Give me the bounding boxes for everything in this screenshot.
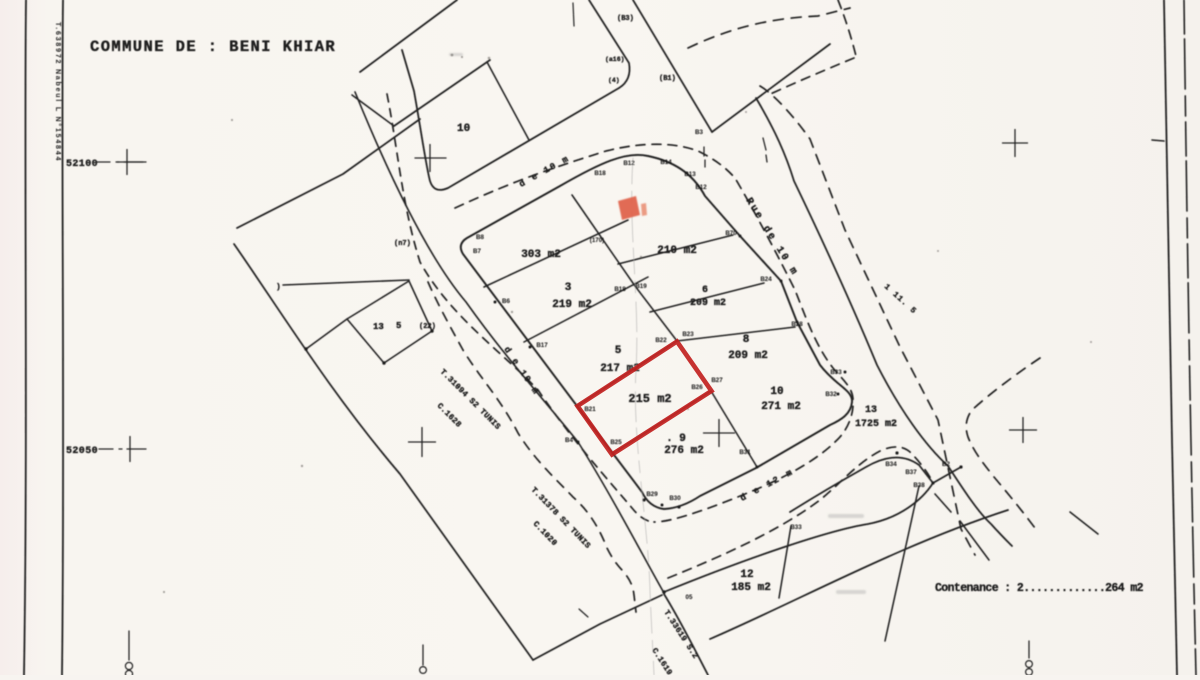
svg-text:(B3): (B3): [617, 15, 634, 23]
svg-text:B6: B6: [502, 298, 510, 305]
svg-text:B32: B32: [825, 391, 837, 398]
svg-text:B7: B7: [473, 248, 481, 255]
svg-text:13: 13: [865, 405, 877, 416]
svg-text:(n7): (n7): [394, 240, 411, 248]
svg-text:(a16): (a16): [605, 56, 625, 63]
svg-text:B34: B34: [885, 461, 897, 468]
svg-text:13: 13: [373, 322, 384, 332]
svg-text:B37: B37: [905, 469, 917, 476]
svg-text:Contenance : 2.............26: Contenance : 2.............264 m2: [935, 582, 1144, 595]
svg-text:10: 10: [770, 386, 783, 398]
svg-text:12: 12: [740, 569, 753, 581]
svg-text:05: 05: [686, 594, 693, 601]
svg-text:1725 m2: 1725 m2: [855, 419, 897, 430]
svg-text:276 m2: 276 m2: [664, 445, 704, 457]
svg-text:(22): (22): [419, 323, 436, 331]
svg-text:10: 10: [457, 123, 470, 135]
svg-text:271 m2: 271 m2: [761, 401, 801, 413]
svg-text:B4: B4: [565, 437, 573, 444]
svg-text:210 m2: 210 m2: [657, 245, 697, 257]
svg-text:B2: B2: [942, 461, 950, 468]
svg-text:B3: B3: [695, 129, 703, 136]
svg-text:B8: B8: [476, 234, 484, 241]
svg-text:52050: 52050: [66, 446, 98, 457]
svg-text:303 m2: 303 m2: [521, 249, 561, 261]
svg-text:B23: B23: [682, 331, 694, 338]
svg-text:B30: B30: [669, 495, 681, 502]
svg-text:B29: B29: [646, 491, 658, 498]
svg-text:209 m2: 209 m2: [690, 298, 726, 309]
svg-text:185 m2: 185 m2: [731, 582, 771, 594]
svg-text:B13: B13: [684, 171, 696, 178]
svg-text:B38: B38: [913, 482, 925, 489]
svg-text:B17: B17: [536, 342, 548, 349]
svg-text:. 9: . 9: [666, 433, 686, 445]
svg-text:B70: B70: [725, 230, 737, 237]
svg-text:B33: B33: [790, 524, 802, 531]
svg-text:209 m2: 209 m2: [728, 350, 768, 362]
svg-text:8: 8: [743, 334, 750, 346]
svg-text:52100: 52100: [66, 159, 98, 170]
svg-text:B14: B14: [660, 159, 672, 166]
svg-text:B26: B26: [691, 384, 703, 391]
svg-text:B25: B25: [610, 439, 622, 446]
svg-text:B18: B18: [594, 170, 606, 177]
svg-text:): ): [276, 283, 281, 292]
svg-text:COMMUNE DE : BENI KHIAR: COMMUNE DE : BENI KHIAR: [90, 38, 336, 56]
svg-text:B33: B33: [830, 369, 842, 376]
svg-text:5: 5: [615, 345, 622, 357]
svg-text:B22: B22: [655, 337, 667, 344]
svg-text:215 m2: 215 m2: [628, 392, 671, 406]
svg-text:5: 5: [396, 321, 401, 331]
svg-text:T.638972 Nabeul L N°154844: T.638972 Nabeul L N°154844: [54, 22, 62, 162]
svg-text:219 m2: 219 m2: [552, 299, 592, 311]
svg-text:B24: B24: [760, 276, 772, 283]
svg-text:(B1): (B1): [659, 75, 676, 83]
svg-text:B18: B18: [614, 286, 626, 293]
svg-text:3: 3: [565, 282, 572, 294]
svg-text:B21: B21: [584, 406, 596, 413]
svg-text:B27: B27: [711, 377, 723, 384]
svg-text:(170): (170): [590, 237, 604, 244]
svg-text:B19: B19: [635, 283, 647, 290]
svg-text:B31: B31: [739, 449, 751, 456]
svg-text:B12: B12: [695, 184, 707, 191]
svg-text:B12: B12: [623, 160, 635, 167]
svg-text:6: 6: [702, 285, 708, 296]
svg-text:(4): (4): [608, 77, 620, 84]
